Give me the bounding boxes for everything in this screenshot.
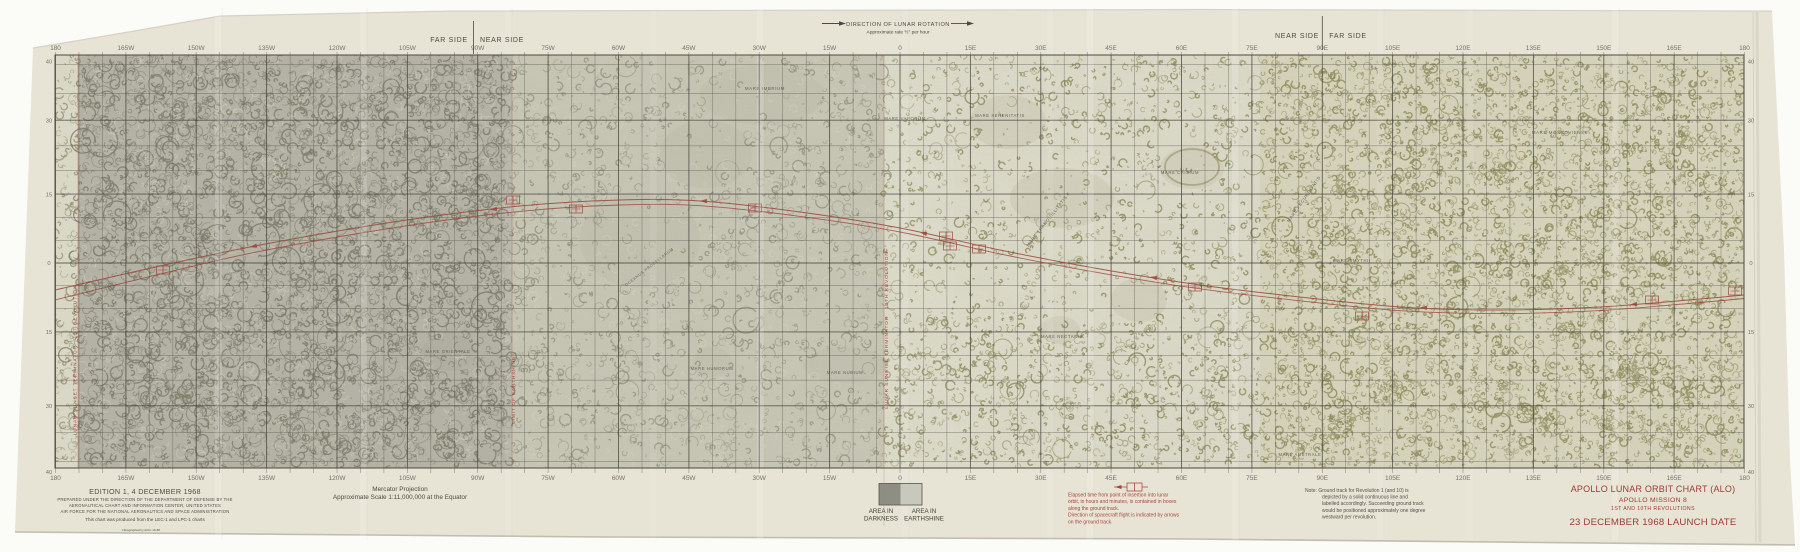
svg-text:23 DECEMBER 1968 LAUNCH DATE: 23 DECEMBER 1968 LAUNCH DATE [1570,517,1737,528]
svg-text:120W: 120W [329,45,347,52]
svg-text:westward per revolution.: westward per revolution. [1322,514,1376,520]
svg-text:30: 30 [1748,118,1754,124]
svg-text:APOLLO MISSION 8: APOLLO MISSION 8 [1619,497,1687,504]
svg-text:165W: 165W [117,475,135,482]
svg-text:NEAR SIDE: NEAR SIDE [480,37,524,44]
svg-text:15E: 15E [965,475,977,482]
svg-text:1ST AND 10TH REVOLUTIONS: 1ST AND 10TH REVOLUTIONS [1611,506,1695,512]
svg-text:0: 0 [898,45,902,52]
svg-text:30E: 30E [1035,45,1047,52]
svg-text:MARE SERENITATIS: MARE SERENITATIS [975,113,1025,118]
svg-text:along the ground track.: along the ground track. [1068,506,1119,512]
svg-text:135W: 135W [258,475,276,482]
svg-text:60E: 60E [1176,475,1188,482]
svg-text:40: 40 [1748,470,1754,476]
svg-text:135W: 135W [258,45,276,52]
svg-text:MARE ORIENTALE: MARE ORIENTALE [425,349,470,354]
svg-text:AIR FORCE FOR THE NATIONAL AER: AIR FORCE FOR THE NATIONAL AERONAUTICS A… [61,509,230,514]
svg-text:30: 30 [46,118,52,124]
svg-text:45W: 45W [682,475,696,482]
svg-text:0: 0 [47,261,50,267]
svg-text:AREA IN: AREA IN [912,508,936,515]
svg-text:180: 180 [50,475,61,482]
svg-text:MARE IMBRIUM: MARE IMBRIUM [745,86,785,91]
svg-text:0: 0 [898,475,902,482]
svg-text:60W: 60W [612,475,626,482]
svg-text:MARE AUSTRALE: MARE AUSTRALE [1279,452,1322,457]
svg-text:Approximate Scale 1:11,000,000: Approximate Scale 1:11,000,000 at the Eq… [333,494,468,501]
svg-text:MARE SMYTHII: MARE SMYTHII [1333,258,1370,263]
svg-text:150W: 150W [188,45,206,52]
svg-text:180: 180 [50,45,61,52]
svg-text:30: 30 [1748,404,1754,410]
svg-text:40: 40 [46,60,52,66]
svg-text:Elapsed time from point of ins: Elapsed time from point of insertion int… [1068,493,1169,499]
svg-text:30E: 30E [1035,475,1047,482]
svg-text:75E: 75E [1246,45,1258,52]
svg-text:15: 15 [46,192,52,198]
svg-text:FAR SIDE: FAR SIDE [1329,33,1367,40]
svg-text:15W: 15W [823,475,837,482]
svg-text:75E: 75E [1246,475,1258,482]
svg-text:60E: 60E [1176,45,1188,52]
svg-text:LUNAR SUNSET TERMINATOR 1ST: LUNAR SUNSET TERMINATOR 1ST REVOLUTION [73,285,79,436]
svg-text:DIRECTION OF LUNAR ROTATION: DIRECTION OF LUNAR ROTATION [846,22,950,28]
svg-text:180: 180 [1739,475,1750,482]
svg-text:105W: 105W [399,475,417,482]
svg-text:75W: 75W [541,475,555,482]
svg-text:40: 40 [1748,60,1754,66]
svg-text:90W: 90W [471,45,485,52]
svg-text:105E: 105E [1385,45,1401,52]
svg-text:depicted by a solid continuous: depicted by a solid continuous line and [1322,495,1408,501]
svg-text:105W: 105W [399,45,417,52]
svg-text:120W: 120W [329,475,347,482]
svg-text:45E: 45E [1105,45,1117,52]
svg-text:DARKNESS: DARKNESS [864,516,898,523]
svg-text:EDITION 1, 4 DECEMBER 1968: EDITION 1, 4 DECEMBER 1968 [89,487,201,496]
svg-text:orbit, in hours and minutes, i: orbit, in hours and minutes, is containe… [1068,499,1177,505]
svg-text:MARE MOSCOVIENSE: MARE MOSCOVIENSE [1532,130,1588,135]
svg-text:Direction of spacecraft flight: Direction of spacecraft flight is indica… [1068,513,1180,519]
svg-text:165E: 165E [1667,45,1683,52]
svg-text:on the ground track.: on the ground track. [1068,519,1112,525]
svg-text:165E: 165E [1667,475,1683,482]
svg-text:NEAR SIDE: NEAR SIDE [1275,33,1319,40]
svg-text:135E: 135E [1526,475,1542,482]
svg-text:AERONAUTICAL CHART AND INFORMA: AERONAUTICAL CHART AND INFORMATION CENTE… [69,503,221,508]
svg-text:135E: 135E [1526,45,1542,52]
svg-text:30W: 30W [753,475,767,482]
svg-text:Note: Ground track for Revolu: Note: Ground track for Revolution 1 (and… [1305,488,1409,494]
svg-text:EARTHSHINE: EARTHSHINE [904,516,944,523]
svg-text:150E: 150E [1596,45,1612,52]
svg-text:Approximate rate ½° per hour: Approximate rate ½° per hour [867,29,930,36]
svg-text:labelled accordingly. Succeedi: labelled accordingly. Succeeding ground … [1322,501,1424,507]
svg-text:90W: 90W [471,475,485,482]
svg-text:MARE NUBIUM: MARE NUBIUM [827,370,863,375]
svg-text:105E: 105E [1385,475,1401,482]
svg-text:15: 15 [46,330,52,336]
svg-text:would be positioned approximat: would be positioned approximately one de… [1322,508,1426,514]
svg-text:15E: 15E [965,45,977,52]
svg-text:45E: 45E [1105,475,1117,482]
svg-text:150W: 150W [188,475,206,482]
svg-text:MARE CRISIUM: MARE CRISIUM [1161,170,1199,175]
svg-text:LUNAR SUNRISE TERMINATOR 10T: LUNAR SUNRISE TERMINATOR 10TH REVOLUTION [884,251,890,408]
svg-text:180: 180 [1739,45,1750,52]
svg-text:120E: 120E [1455,475,1471,482]
svg-text:30W: 30W [753,45,767,52]
svg-text:165W: 165W [117,45,135,52]
svg-text:MARE HUMORUM: MARE HUMORUM [691,366,734,371]
svg-text:15: 15 [1748,192,1754,198]
svg-text:120E: 120E [1455,45,1471,52]
svg-text:150E: 150E [1596,475,1612,482]
svg-text:AREA IN: AREA IN [869,508,893,515]
svg-text:75W: 75W [541,45,555,52]
svg-text:15W: 15W [823,45,837,52]
svg-text:FAR SIDE: FAR SIDE [430,37,468,44]
svg-text:60W: 60W [612,45,626,52]
svg-text:PREPARED UNDER THE DIRECTION O: PREPARED UNDER THE DIRECTION OF THE DEPA… [57,497,232,502]
svg-text:45W: 45W [682,45,696,52]
svg-text:15: 15 [1748,330,1754,336]
svg-text:This chart was produced from t: This chart was produced from the LEC-1 a… [85,517,205,522]
svg-text:APOLLO LUNAR ORBIT CHART (ALO): APOLLO LUNAR ORBIT CHART (ALO) [1571,484,1736,494]
svg-text:Mercator Projection: Mercator Projection [372,486,428,493]
svg-text:0: 0 [1749,261,1752,267]
svg-text:30: 30 [46,404,52,410]
svg-text:Lithographed by ACIC 10-68: Lithographed by ACIC 10-68 [122,528,160,532]
svg-text:40: 40 [46,470,52,476]
svg-text:90E: 90E [1317,475,1329,482]
